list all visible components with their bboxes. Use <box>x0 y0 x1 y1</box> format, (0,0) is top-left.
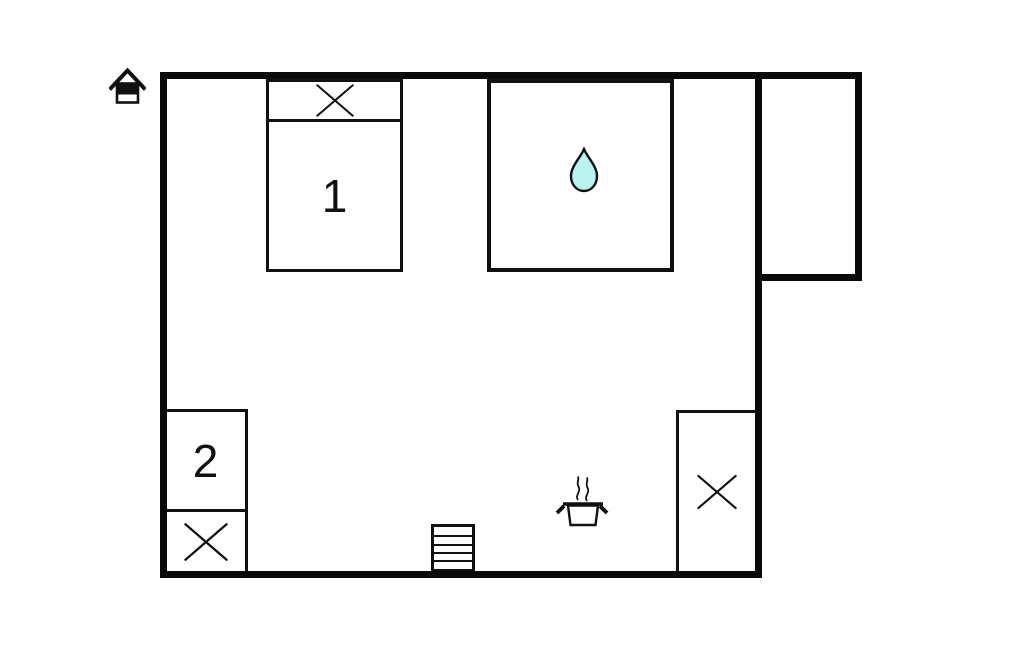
bed-2-foot <box>166 512 245 571</box>
cross-icon-closet <box>697 473 737 511</box>
wall-annex-bottom <box>755 274 862 281</box>
cross-icon-bed2 <box>184 521 228 563</box>
wall-right-outer <box>855 72 862 281</box>
bed-2: 2 <box>163 409 248 574</box>
water-drop-icon <box>568 147 600 194</box>
cross-icon-bed1-head <box>312 84 358 117</box>
bedroom-1-label: 1 <box>322 173 348 219</box>
bedroom-2-label: 2 <box>193 438 219 484</box>
bathroom <box>487 79 674 272</box>
wall-bottom <box>160 571 762 578</box>
stairs-icon <box>431 524 475 577</box>
bed-1: 1 <box>266 79 403 272</box>
bed-1-headboard <box>269 82 400 122</box>
wall-right-inner <box>755 72 762 578</box>
storage-room <box>676 410 758 574</box>
wall-left <box>160 72 167 578</box>
floorplan-canvas: 1 2 <box>0 0 1024 652</box>
home-icon[interactable] <box>109 67 146 105</box>
cooking-pot-icon <box>552 472 612 528</box>
